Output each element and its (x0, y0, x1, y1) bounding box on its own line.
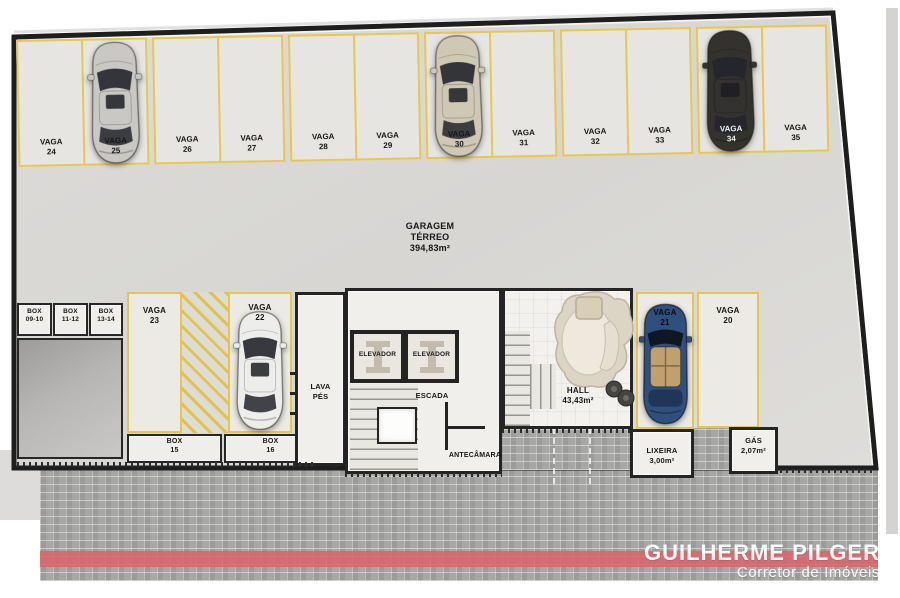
wall-hatch (780, 469, 876, 473)
stair-landing (377, 407, 417, 444)
floor-plan: VAGA24 VAGA25 VAGA26 VAGA27 VAGA28 VAGA2… (0, 0, 900, 598)
stall-label: VAGA24 (20, 137, 83, 158)
stall-vaga-25: VAGA25 (83, 40, 148, 164)
top-parking-row: VAGA24 VAGA25 VAGA26 VAGA27 VAGA28 VAGA2… (16, 24, 840, 167)
stall-vaga-28: VAGA28 (290, 36, 357, 160)
stall-label: VAGA20 (697, 306, 759, 326)
box-label: BOX13-14 (89, 308, 123, 324)
box-label: BOX15 (127, 437, 222, 455)
stall-label: VAGA28 (292, 132, 355, 153)
lava-pes-label: LAVAPÉS (295, 382, 346, 401)
hall-stairs (505, 331, 530, 426)
stall-vaga-31: VAGA31 (490, 32, 555, 156)
box-label: BOX16 (224, 437, 317, 455)
ramp-area (17, 338, 123, 459)
antechamber-label: ANTECÂMARA (420, 451, 530, 460)
wall-hatch (17, 462, 317, 467)
wall-hatch (502, 429, 633, 433)
partition-wall (448, 426, 485, 429)
stall-label: VAGA29 (356, 130, 419, 151)
tap-icon (290, 372, 298, 375)
branding-name: GUILHERME PILGER (644, 541, 880, 564)
branding-subtitle: Corretor de Imóveis (644, 564, 880, 582)
elevator-label: ELEVADOR (404, 351, 459, 359)
stall-vaga-26: VAGA26 (154, 38, 221, 162)
hall-label: HALL43,43m² (548, 386, 608, 406)
garage-area-label: GARAGEMTÉRREO394,83m² (380, 221, 480, 254)
stall-label: VAGA33 (628, 125, 691, 146)
stall-vaga-27: VAGA27 (219, 37, 284, 161)
stall-label: VAGA22 (228, 303, 292, 323)
stall-label: VAGA31 (492, 128, 555, 149)
stall-label: VAGA21 (636, 308, 694, 328)
stall-vaga-33: VAGA33 (626, 29, 691, 153)
stall-label: VAGA30 (428, 129, 491, 150)
lixeira-label: LIXEIRA3,00m² (630, 446, 694, 465)
stall-vaga-30: VAGA30 (426, 33, 493, 157)
no-parking-hatch (182, 292, 228, 433)
stall-pair: VAGA34 VAGA35 (696, 24, 829, 153)
stall-vaga-29: VAGA29 (354, 34, 419, 158)
car-top-view (232, 310, 288, 432)
stall-label: VAGA32 (564, 126, 627, 147)
stall-label: VAGA25 (84, 136, 147, 157)
entry-path-dash (553, 428, 555, 484)
stall-label: VAGA23 (127, 306, 182, 326)
stall-pair: VAGA30 VAGA31 (424, 30, 557, 159)
stall-pair: VAGA32 VAGA33 (560, 27, 693, 156)
stall-vaga-35: VAGA35 (762, 26, 827, 150)
entry-path-dash (589, 428, 591, 484)
stall-pair: VAGA28 VAGA29 (288, 32, 421, 161)
stall-vaga-34: VAGA34 (698, 28, 765, 152)
stall-vaga-32: VAGA32 (562, 30, 629, 154)
paver-patch (692, 428, 730, 470)
tap-icon (290, 412, 298, 415)
stairs-label: ESCADA (397, 391, 467, 401)
stall-vaga-24: VAGA24 (18, 41, 85, 165)
branding: GUILHERME PILGER Corretor de Imóveis (644, 541, 880, 582)
stall-label: VAGA35 (764, 122, 827, 143)
elevator-label: ELEVADOR (350, 351, 405, 359)
wall-hatch (345, 473, 502, 477)
box-label: BOX11-12 (53, 308, 88, 324)
decor-stones (604, 380, 636, 408)
stall-pair: VAGA24 VAGA25 (16, 37, 149, 166)
gas-label: GÁS2,07m² (729, 436, 778, 455)
stall-label: VAGA27 (220, 133, 283, 154)
stall-label: VAGA34 (700, 124, 763, 145)
stall-pair: VAGA26 VAGA27 (152, 35, 285, 164)
stall-label: VAGA26 (156, 134, 219, 155)
box-label: BOX09-10 (17, 308, 52, 324)
